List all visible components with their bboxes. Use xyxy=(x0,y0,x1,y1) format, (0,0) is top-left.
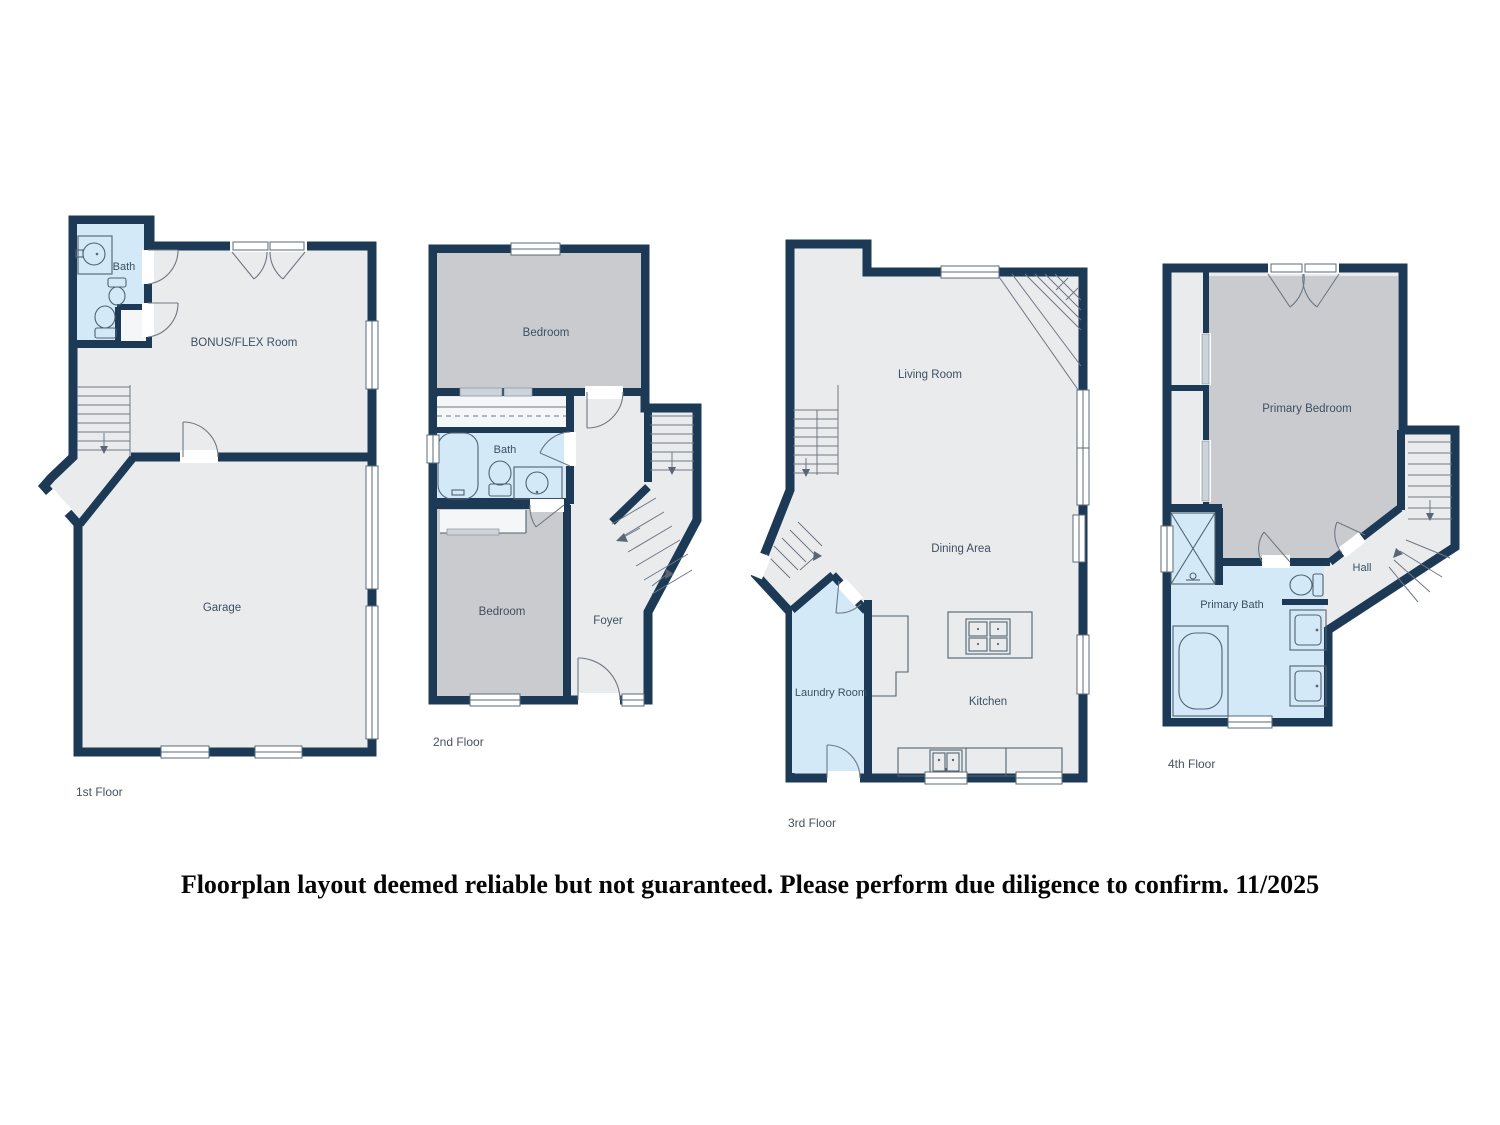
closet-sliding-door xyxy=(1202,334,1209,384)
floorplan-3rd-floor: Living Room Dining Area Laundry Room Kit… xyxy=(751,244,1089,830)
room-label-living-room: Living Room xyxy=(898,369,962,381)
floorplan-sheet: Bath BONUS/FLEX Room Garage 1st Floor xyxy=(0,0,1500,1125)
closet-sliding-door xyxy=(504,388,532,396)
room-label-bedroom: Bedroom xyxy=(523,327,570,339)
room-label-bedroom2: Bedroom xyxy=(479,606,526,618)
floorplan-4th-floor: Primary Bedroom Primary Bath Hall 4th Fl… xyxy=(1161,261,1455,771)
floor-label-1st: 1st Floor xyxy=(76,785,123,799)
floorplan-canvas: Bath BONUS/FLEX Room Garage 1st Floor xyxy=(0,0,1500,1125)
closet-fill xyxy=(437,397,567,427)
room-label-garage: Garage xyxy=(203,602,241,614)
closet-sliding-door xyxy=(460,388,502,396)
room-label-dining-area: Dining Area xyxy=(931,543,991,555)
bedroom-fill xyxy=(437,253,641,389)
floor-label-2nd: 2nd Floor xyxy=(433,735,484,749)
primary-bedroom-fill xyxy=(1208,276,1398,560)
room-label-hall: Hall xyxy=(1353,562,1372,574)
closet-sliding-door xyxy=(1202,441,1209,501)
room-label-bath: Bath xyxy=(113,261,136,273)
room-label-kitchen: Kitchen xyxy=(969,696,1007,708)
floorplan-2nd-floor: Bedroom Bath Bedroom Foyer 2nd Floor xyxy=(427,243,697,749)
closet-sliding-door xyxy=(447,529,499,535)
floorplan-1st-floor: Bath BONUS/FLEX Room Garage 1st Floor xyxy=(44,220,378,799)
room-label-primary-bath: Primary Bath xyxy=(1200,599,1264,611)
room-label-laundry-room: Laundry Room xyxy=(795,687,867,699)
room-label-primary-bedroom: Primary Bedroom xyxy=(1262,403,1351,415)
bedroom-fill xyxy=(437,509,563,696)
disclaimer-text: Floorplan layout deemed reliable but not… xyxy=(181,870,1319,899)
floor-label-3rd: 3rd Floor xyxy=(788,816,836,830)
room-label-bonus-flex: BONUS/FLEX Room xyxy=(191,337,298,349)
room-label-foyer: Foyer xyxy=(593,615,623,627)
room-label-bath: Bath xyxy=(494,444,517,456)
floor-label-4th: 4th Floor xyxy=(1168,757,1215,771)
